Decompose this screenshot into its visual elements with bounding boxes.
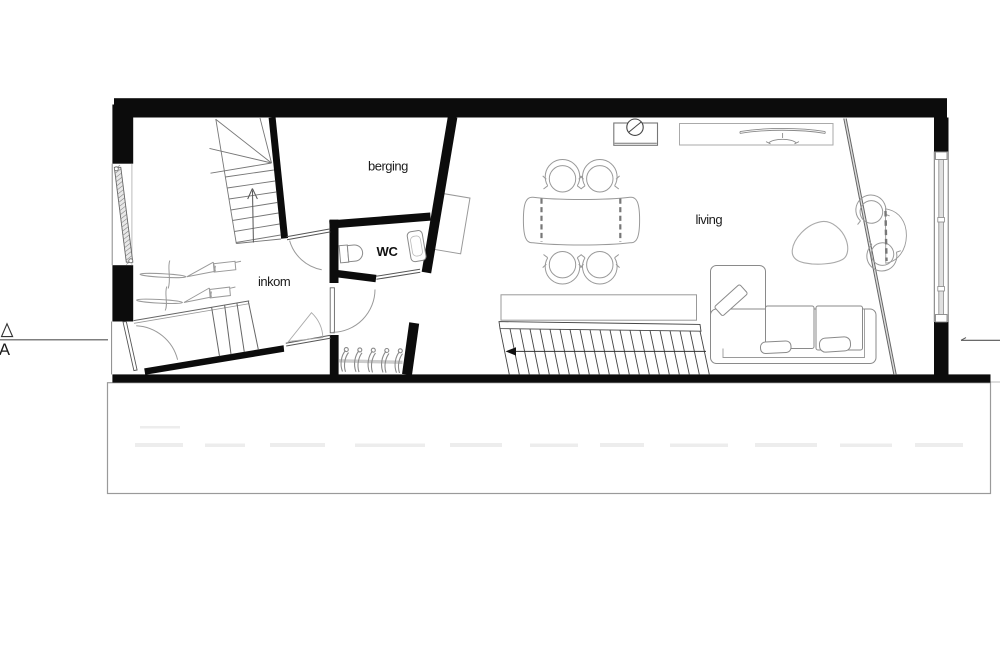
svg-text:berging: berging <box>368 158 408 173</box>
svg-text:WC: WC <box>377 244 399 259</box>
svg-text:living: living <box>696 212 723 227</box>
svg-text:inkom: inkom <box>258 274 290 289</box>
svg-text:A: A <box>0 341 10 359</box>
